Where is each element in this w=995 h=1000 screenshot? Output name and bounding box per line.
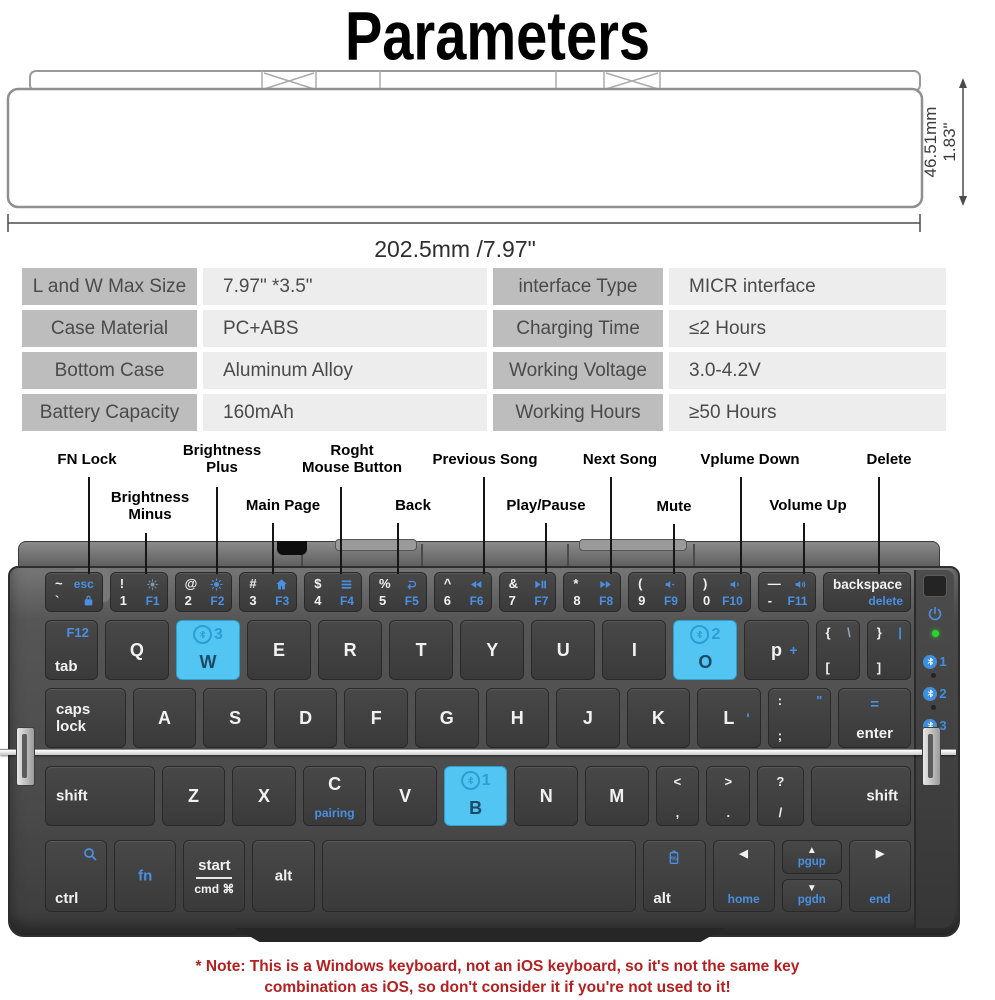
- callout-line-next-song: [610, 477, 612, 574]
- bluetooth-channel-badge: 1: [461, 771, 491, 790]
- key-legend: !: [120, 577, 124, 590]
- key-legend: T: [416, 641, 427, 659]
- spec-label: Charging Time: [493, 310, 663, 347]
- key-semicolon[interactable]: :";: [768, 688, 832, 748]
- sun-dim-icon: [146, 578, 159, 591]
- key-legend: end: [869, 893, 890, 905]
- key-legend: ▶: [876, 849, 884, 860]
- key-legend: M: [609, 787, 624, 805]
- key-p[interactable]: p+: [744, 620, 808, 680]
- keyboard-row-1: ~esc`!1F1@2F2#3F3$4F4%5F5^6F6&7F7*8F8(9F…: [45, 572, 911, 612]
- callout-line-play-pause: [545, 523, 547, 574]
- key-legend: F6: [470, 595, 484, 607]
- key-y[interactable]: Y: [460, 620, 524, 680]
- key-0-f10[interactable]: )0F10: [693, 572, 751, 612]
- key-5-f5[interactable]: %5F5: [369, 572, 427, 612]
- key-legend: J: [583, 709, 593, 727]
- key-start-cmd[interactable]: startcmd ⌘: [183, 840, 245, 912]
- key-legend: F: [371, 709, 382, 727]
- triangle-down-icon: ▼: [807, 884, 817, 894]
- key-4-f4[interactable]: $4F4: [304, 572, 362, 612]
- key-legend: ): [703, 577, 707, 590]
- key-legend: Q: [130, 641, 144, 659]
- back-icon: [405, 578, 418, 591]
- key-tab[interactable]: F12tab: [45, 620, 98, 680]
- key-legend: O: [698, 653, 712, 671]
- key-legend: \: [847, 626, 851, 639]
- callout-label-previous-song: Previous Song: [432, 452, 537, 469]
- key-legend: p: [771, 641, 782, 659]
- key-legend: shift: [56, 787, 88, 804]
- spec-value: Aluminum Alloy: [203, 352, 487, 389]
- power-icon: [927, 606, 943, 627]
- power-indicator: [927, 606, 943, 637]
- key-legend: `: [55, 594, 59, 607]
- key-legend: :: [778, 694, 782, 707]
- spec-label: Working Voltage: [493, 352, 663, 389]
- key-legend: B: [469, 799, 482, 817]
- callout-label-brightness-minus: Brightness Minus: [111, 490, 189, 524]
- home-icon: [275, 578, 288, 591]
- key-legend: .: [726, 806, 730, 819]
- key-legend: L: [723, 709, 734, 727]
- key-1-f1[interactable]: !1F1: [110, 572, 168, 612]
- key-backspace[interactable]: backspacedelete: [823, 572, 911, 612]
- key-legend: /: [779, 806, 783, 819]
- callout-label-main-page: Main Page: [246, 498, 320, 515]
- bluetooth-icon: [690, 625, 709, 644]
- spec-label: Working Hours: [493, 394, 663, 431]
- key-e[interactable]: E: [247, 620, 311, 680]
- key-legend: D: [299, 709, 312, 727]
- search-icon: [82, 846, 98, 862]
- key-legend: {: [826, 626, 831, 639]
- key-legend: =: [870, 697, 879, 712]
- key-legend: F8: [599, 595, 613, 607]
- key-a[interactable]: A: [133, 688, 197, 748]
- key-c[interactable]: Cpairing: [303, 766, 367, 826]
- key-legend: pgup: [798, 857, 826, 869]
- key-fn[interactable]: fn: [114, 840, 176, 912]
- svg-text:%: %: [672, 856, 678, 863]
- key-legend: (: [638, 577, 642, 590]
- key-legend: ]: [877, 661, 881, 674]
- spec-label: Case Material: [22, 310, 197, 347]
- spine-tab: [335, 539, 417, 551]
- bluetooth-icon: [193, 625, 212, 644]
- lock-icon: [82, 594, 95, 607]
- key-legend: start: [198, 857, 231, 874]
- keyboard-row-2: F12tabQ3WERTYUI2Op+{\[}|]: [45, 620, 911, 680]
- key-q[interactable]: Q: [105, 620, 169, 680]
- spec-value: 7.97" *3.5": [203, 268, 487, 305]
- key-k[interactable]: K: [627, 688, 691, 748]
- key-legend: [: [826, 661, 830, 674]
- key-legend: *: [573, 577, 578, 590]
- key-legend: ctrl: [55, 891, 78, 906]
- note-line-1: * Note: This is a Windows keyboard, not …: [0, 958, 995, 976]
- key-legend: 7: [509, 594, 516, 607]
- key-legend: R: [344, 641, 357, 659]
- key-legend: F7: [534, 595, 548, 607]
- key-legend: ?: [776, 775, 784, 788]
- key-legend: X: [258, 787, 270, 805]
- spec-value: PC+ABS: [203, 310, 487, 347]
- spec-label: Battery Capacity: [22, 394, 197, 431]
- keyboard-row-3: caps lockASDFGHJKL':";=enter: [45, 688, 911, 748]
- bluetooth-icon: [923, 687, 937, 701]
- key-3-f3[interactable]: #3F3: [239, 572, 297, 612]
- key-legend: F11: [788, 595, 808, 607]
- bt-indicator-1: 1: [923, 654, 946, 669]
- fold-clip-left: [16, 727, 35, 786]
- key-shift-left[interactable]: shift: [45, 766, 155, 826]
- key-legend: ,: [676, 806, 680, 819]
- key-legend: 3: [249, 594, 256, 607]
- key-legend: I: [632, 641, 637, 659]
- key-legend: cmd ⌘: [194, 882, 234, 896]
- callout-line-previous-song: [483, 477, 485, 574]
- play-pause-icon: [534, 578, 547, 591]
- spine-notch: [277, 541, 307, 555]
- spec-value: ≥50 Hours: [669, 394, 946, 431]
- key-8-f8[interactable]: *8F8: [563, 572, 621, 612]
- key-legend: <: [674, 775, 682, 788]
- key-9-f9[interactable]: (9F9: [628, 572, 686, 612]
- fold-seam: [0, 749, 956, 755]
- key-legend: pairing: [315, 807, 355, 819]
- key-legend: -: [768, 594, 772, 607]
- key-legend: F5: [405, 595, 419, 607]
- sun-icon: [210, 578, 223, 591]
- key-m[interactable]: M: [585, 766, 649, 826]
- power-led: [932, 630, 939, 637]
- key-legend: ;: [778, 729, 782, 742]
- callout-label-fn-lock: FN Lock: [57, 452, 116, 469]
- next-track-icon: [599, 578, 612, 591]
- bt-indicator-number: 2: [939, 686, 946, 701]
- key-legend: home: [728, 893, 760, 905]
- spec-label: interface Type: [493, 268, 663, 305]
- key-slash[interactable]: ?/: [757, 766, 803, 826]
- spec-label: L and W Max Size: [22, 268, 197, 305]
- side-button[interactable]: [923, 575, 947, 597]
- height-mm-label: 46.51mm: [921, 107, 940, 178]
- key-f[interactable]: F: [344, 688, 408, 748]
- key-dash-f11[interactable]: —-F11: [758, 572, 816, 612]
- callout-line-vplume-down: [740, 477, 742, 574]
- key-pgup[interactable]: ▲pgup: [782, 840, 842, 874]
- key-u[interactable]: U: [531, 620, 595, 680]
- note-line-2: combination as iOS, so don't consider it…: [0, 979, 995, 997]
- width-label: 202.5mm /7.97": [374, 236, 536, 262]
- key-7-f7[interactable]: &7F7: [499, 572, 557, 612]
- key-legend: ": [816, 694, 822, 707]
- key-legend: +: [789, 643, 797, 657]
- callout-label-volume-up: Volume Up: [769, 498, 846, 515]
- key-legend: ◀: [739, 849, 747, 860]
- bluetooth-channel-number: 1: [482, 772, 491, 790]
- mute-icon: [664, 578, 677, 591]
- key-legend: 8: [573, 594, 580, 607]
- callout-line-delete: [878, 477, 880, 574]
- key-i[interactable]: I: [602, 620, 666, 680]
- key-legend: A: [158, 709, 171, 727]
- key-s[interactable]: S: [203, 688, 267, 748]
- key-legend: %: [379, 577, 391, 590]
- key-n[interactable]: N: [514, 766, 578, 826]
- keyboard-keys: ~esc`!1F1@2F2#3F3$4F4%5F5^6F6&7F7*8F8(9F…: [45, 572, 911, 912]
- key-legend: pgdn: [798, 895, 826, 907]
- key-v[interactable]: V: [373, 766, 437, 826]
- key-alt-left[interactable]: alt: [252, 840, 314, 912]
- key-2-f2[interactable]: @2F2: [175, 572, 233, 612]
- key-g[interactable]: G: [415, 688, 479, 748]
- key-legend: F4: [340, 595, 354, 607]
- key-r[interactable]: R: [318, 620, 382, 680]
- key-legend: 5: [379, 594, 386, 607]
- callout-line-brightness-minus: [145, 533, 147, 574]
- spec-value: 3.0-4.2V: [669, 352, 946, 389]
- key-lbracket[interactable]: {\[: [816, 620, 860, 680]
- key-h[interactable]: H: [486, 688, 550, 748]
- key-l[interactable]: L': [697, 688, 761, 748]
- bluetooth-channel-badge: 3: [193, 625, 223, 644]
- bluetooth-channel-number: 3: [214, 626, 223, 644]
- callout-line-back: [397, 523, 399, 574]
- key-shift-right[interactable]: shift: [811, 766, 911, 826]
- start-cmd-legend: startcmd ⌘: [184, 841, 244, 911]
- key-legend: fn: [138, 869, 152, 884]
- key-o[interactable]: 2O: [673, 620, 737, 680]
- key-d[interactable]: D: [274, 688, 338, 748]
- keyboard-row-5: ctrlfnstartcmd ⌘alt%alt◀home▲pgup▼pgdn▶e…: [45, 840, 911, 912]
- callout-line-fn-lock: [88, 477, 90, 574]
- key-legend: caps lock: [56, 701, 90, 736]
- parameters-sheet: Parameters 46.51mm 1.83" 202.5mm /7.97": [0, 0, 995, 1000]
- callout-line-volume-up: [803, 523, 805, 574]
- vol-up-icon: [794, 578, 807, 591]
- key-legend: delete: [868, 595, 903, 607]
- spec-value: MICR interface: [669, 268, 946, 305]
- key-legend: esc: [74, 578, 94, 590]
- key-legend: 2: [185, 594, 192, 607]
- key-legend: F3: [275, 595, 289, 607]
- key-legend: K: [652, 709, 665, 727]
- key-legend: ^: [444, 577, 452, 590]
- key-legend: ~: [55, 577, 63, 590]
- height-in-label: 1.83": [940, 122, 959, 161]
- keyboard-side-view-diagram: 46.51mm 1.83" 202.5mm /7.97": [0, 62, 995, 277]
- key-legend: 6: [444, 594, 451, 607]
- key-legend: Z: [188, 787, 199, 805]
- key-legend: 9: [638, 594, 645, 607]
- key-legend: F9: [664, 595, 678, 607]
- battery-icon: %: [666, 849, 682, 865]
- bluetooth-icon: [461, 771, 480, 790]
- key-legend: 1: [120, 594, 127, 607]
- width-dimension: 202.5mm /7.97": [8, 214, 920, 262]
- key-legend: ': [746, 711, 749, 725]
- prev-track-icon: [470, 578, 483, 591]
- key-legend: S: [229, 709, 241, 727]
- key-legend: alt: [275, 869, 293, 884]
- key-pgup-pgdn[interactable]: ▲pgup▼pgdn: [782, 840, 842, 912]
- callout-line-roght-mouse-button: [340, 487, 342, 574]
- callout-line-main-page: [272, 523, 274, 574]
- triangle-up-icon: ▲: [807, 846, 817, 856]
- height-dimension: 46.51mm 1.83": [921, 78, 967, 206]
- key-legend: enter: [856, 726, 893, 741]
- key-legend: &: [509, 577, 518, 590]
- key-comma[interactable]: <,: [656, 766, 700, 826]
- callout-label-mute: Mute: [657, 499, 692, 516]
- key-j[interactable]: J: [556, 688, 620, 748]
- key-legend: shift: [866, 789, 898, 804]
- key-space[interactable]: [322, 840, 637, 912]
- key-legend: 0: [703, 594, 710, 607]
- key-end[interactable]: ▶end: [849, 840, 911, 912]
- bluetooth-channel-badge: 2: [690, 625, 720, 644]
- key-legend: N: [540, 787, 553, 805]
- callout-label-brightness-plus: Brightness Plus: [183, 443, 261, 477]
- key-legend: V: [399, 787, 411, 805]
- key-legend: alt: [653, 891, 671, 906]
- key-legend: tab: [55, 659, 78, 674]
- key-legend: C: [328, 775, 341, 793]
- key-legend: —: [768, 577, 781, 590]
- spec-value: ≤2 Hours: [669, 310, 946, 347]
- callout-label-play-pause: Play/Pause: [506, 498, 585, 515]
- key-legend: @: [185, 577, 198, 590]
- key-legend: 4: [314, 594, 321, 607]
- bluetooth-icon: [923, 655, 937, 669]
- key-legend: }: [877, 626, 882, 639]
- key-pgdn[interactable]: ▼pgdn: [782, 879, 842, 913]
- key-legend: F1: [146, 595, 160, 607]
- key-period[interactable]: >.: [706, 766, 750, 826]
- key-b[interactable]: 1B: [444, 766, 508, 826]
- vol-down-icon: [729, 578, 742, 591]
- key-legend: $: [314, 577, 321, 590]
- key-legend: F12: [66, 626, 88, 639]
- key-6-f6[interactable]: ^6F6: [434, 572, 492, 612]
- key-legend: G: [440, 709, 454, 727]
- callout-label-vplume-down: Vplume Down: [700, 452, 799, 469]
- key-legend: F10: [722, 595, 743, 607]
- key-w[interactable]: 3W: [176, 620, 240, 680]
- callout-line-mute: [673, 524, 675, 574]
- callout-label-next-song: Next Song: [583, 452, 657, 469]
- side-view-body: [8, 89, 922, 207]
- key-legend: backspace: [833, 578, 902, 592]
- key-legend: W: [199, 653, 216, 671]
- callout-label-delete: Delete: [866, 452, 911, 469]
- spec-value: 160mAh: [203, 394, 487, 431]
- spine-tab: [579, 539, 687, 551]
- callout-label-back: Back: [395, 498, 431, 515]
- key-rbracket[interactable]: }|]: [867, 620, 911, 680]
- bt-indicator-dot: [931, 673, 936, 678]
- bt-indicator-2: 2: [923, 686, 946, 701]
- divider: [196, 877, 232, 879]
- key-legend: >: [725, 775, 733, 788]
- key-legend: Y: [486, 641, 498, 659]
- fold-clip-right: [922, 727, 941, 786]
- key-x[interactable]: X: [232, 766, 296, 826]
- key-legend: F2: [210, 595, 224, 607]
- key-legend: E: [273, 641, 285, 659]
- key-grave-esc[interactable]: ~esc`: [45, 572, 103, 612]
- key-legend: #: [249, 577, 256, 590]
- key-enter[interactable]: =enter: [838, 688, 911, 748]
- key-legend: H: [511, 709, 524, 727]
- key-legend: U: [557, 641, 570, 659]
- menu-icon: [340, 578, 353, 591]
- key-t[interactable]: T: [389, 620, 453, 680]
- key-home[interactable]: ◀home: [713, 840, 775, 912]
- key-alt-right[interactable]: %alt: [643, 840, 705, 912]
- key-legend: |: [898, 626, 902, 639]
- spec-table: L and W Max Size7.97" *3.5"interface Typ…: [22, 268, 946, 431]
- spec-label: Bottom Case: [22, 352, 197, 389]
- keyboard-bottom-lip: [235, 928, 725, 942]
- callout-label-roght-mouse-button: Roght Mouse Button: [302, 443, 402, 477]
- key-caps-lock[interactable]: caps lock: [45, 688, 126, 748]
- key-z[interactable]: Z: [162, 766, 226, 826]
- bt-indicator-number: 1: [939, 654, 946, 669]
- bt-indicator-dot: [931, 705, 936, 710]
- key-ctrl[interactable]: ctrl: [45, 840, 107, 912]
- callout-line-brightness-plus: [216, 487, 218, 574]
- bluetooth-channel-number: 2: [711, 626, 720, 644]
- keyboard-row-4: shiftZXCpairingV1BNM<,>.?/shift: [45, 766, 911, 826]
